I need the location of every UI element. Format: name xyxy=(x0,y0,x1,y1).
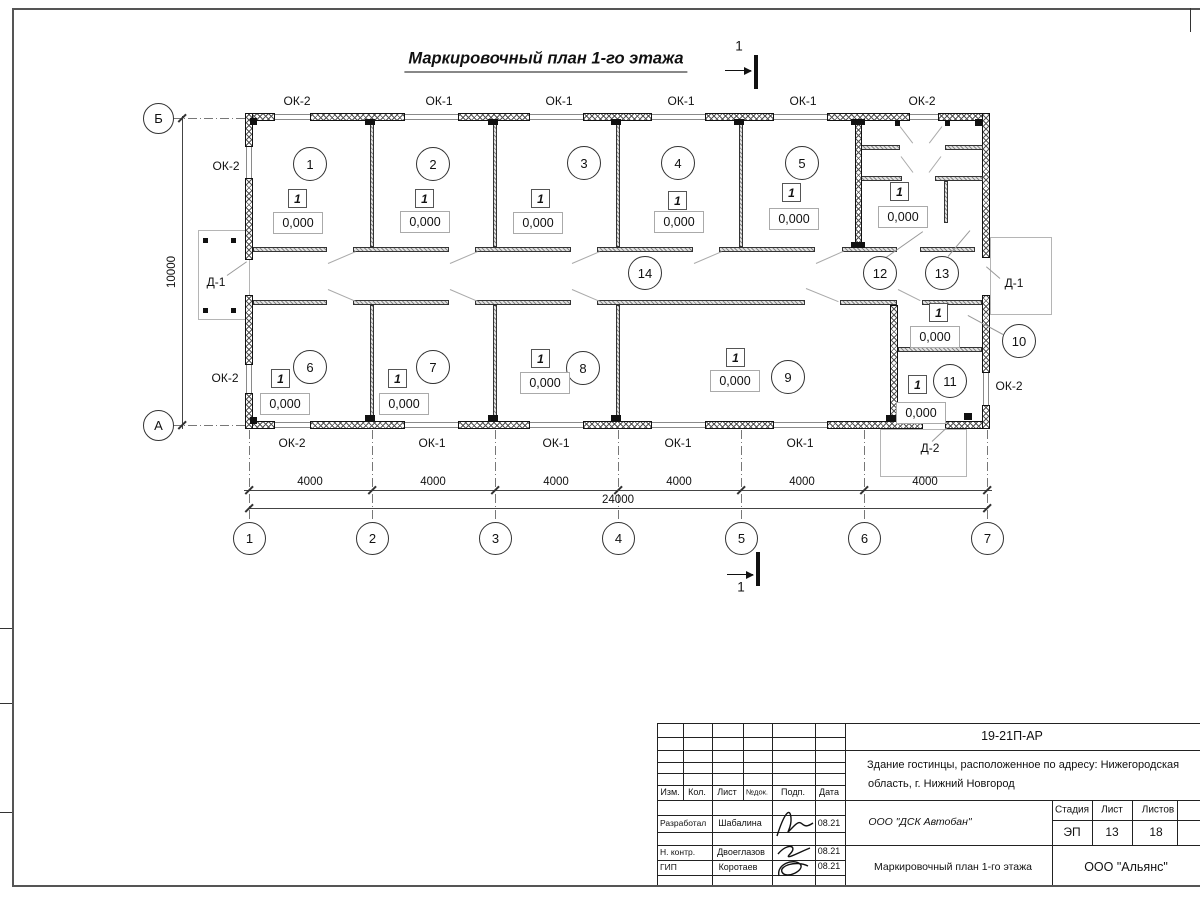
partition-wall xyxy=(858,176,902,181)
room-number-circle: 13 xyxy=(925,256,959,290)
window-label: ОК-1 xyxy=(426,94,453,108)
window-label: ОК-1 xyxy=(668,94,695,108)
titleblock-line xyxy=(657,815,845,816)
wall-end-cap xyxy=(851,119,865,125)
grid-axis-bubble: Б xyxy=(143,103,174,134)
porch-post xyxy=(203,308,208,313)
axis-line-vertical xyxy=(372,430,373,523)
room-number-circle: 7 xyxy=(416,350,450,384)
door-swing-line xyxy=(328,251,356,264)
window-symbol xyxy=(246,147,252,178)
window-symbol xyxy=(275,422,310,428)
titleblock-header-kol: Кол. xyxy=(688,787,706,797)
window-symbol xyxy=(246,365,252,393)
partition-wall xyxy=(253,247,327,252)
titleblock-line xyxy=(657,750,1200,751)
window-label: ОК-2 xyxy=(284,94,311,108)
wall-end-cap xyxy=(250,417,257,424)
door-swing-line xyxy=(572,251,600,264)
titleblock-line xyxy=(845,723,846,885)
sheet-frame-top xyxy=(12,8,1200,10)
door-swing-line xyxy=(901,156,914,173)
grid-axis-bubble: 5 xyxy=(725,522,758,555)
section-mark-bar xyxy=(756,552,760,586)
axis-line-horizontal xyxy=(172,425,254,426)
exterior-wall xyxy=(458,421,530,429)
axis-line-vertical xyxy=(987,430,988,523)
door-swing-line xyxy=(806,288,838,302)
floor-type-mark: 1 xyxy=(668,191,687,210)
wall-end-cap xyxy=(975,119,982,126)
window-symbol xyxy=(530,114,583,120)
sheet-frame-left xyxy=(12,8,14,886)
window-label: ОК-2 xyxy=(996,379,1023,393)
titleblock-sheet-title: Маркировочный план 1-го этажа xyxy=(874,861,1032,873)
partition-wall xyxy=(475,300,571,305)
door-swing-line xyxy=(929,156,942,173)
titleblock-line xyxy=(657,762,845,763)
floor-type-mark: 1 xyxy=(929,303,948,322)
partition-wall xyxy=(493,305,497,421)
window-symbol xyxy=(405,422,458,428)
section-arrow-icon xyxy=(746,571,754,579)
dimension-value: 4000 xyxy=(543,476,569,488)
door-swing-line xyxy=(694,251,722,264)
window-label: ОК-1 xyxy=(546,94,573,108)
trim-mark xyxy=(0,812,12,813)
elevation-mark: 0,000 xyxy=(878,206,928,228)
wall-end-cap xyxy=(611,415,621,421)
dimension-total-value: 24000 xyxy=(602,494,634,506)
door-swing-line xyxy=(450,251,478,264)
door-swing-line xyxy=(450,289,478,302)
titleblock-header-podp: Подп. xyxy=(781,787,805,797)
wall-end-cap xyxy=(851,242,865,248)
window-label: ОК-1 xyxy=(665,436,692,450)
partition-wall xyxy=(719,247,815,252)
titleblock-stage-header: Стадия xyxy=(1055,805,1089,816)
door-swing-line xyxy=(328,289,356,302)
floor-type-mark: 1 xyxy=(726,348,745,367)
porch-post xyxy=(203,238,208,243)
wall-end-cap xyxy=(734,119,744,125)
titleblock-header-data: Дата xyxy=(819,787,839,797)
titleblock-line xyxy=(1177,800,1178,845)
titleblock-line xyxy=(1052,800,1053,885)
elevation-mark: 0,000 xyxy=(260,393,310,415)
partition-wall xyxy=(616,121,620,247)
axis-line-vertical xyxy=(741,430,742,523)
section-mark-label: 1 xyxy=(737,580,745,595)
room-number-circle: 9 xyxy=(771,360,805,394)
door-swing-line xyxy=(898,289,920,301)
window-label: ОК-2 xyxy=(213,159,240,173)
titleblock-line xyxy=(657,737,845,738)
exterior-wall xyxy=(583,421,652,429)
door-swing-line xyxy=(929,126,943,144)
titleblock-sheets-header: Листов xyxy=(1142,805,1175,816)
elevation-mark: 0,000 xyxy=(896,402,946,424)
titleblock-date: 08.21 xyxy=(818,818,841,828)
window-symbol xyxy=(652,422,705,428)
sheet-frame-bottom xyxy=(12,885,1200,887)
wall-end-cap xyxy=(365,415,375,421)
titleblock-line xyxy=(657,832,845,833)
room-number-circle: 10 xyxy=(1002,324,1036,358)
elevation-mark: 0,000 xyxy=(654,211,704,233)
door-swing-line xyxy=(572,289,600,302)
room-number-circle: 4 xyxy=(661,146,695,180)
partition-wall xyxy=(475,247,571,252)
partition-wall xyxy=(597,247,693,252)
signature-1 xyxy=(774,806,816,840)
door-label: Д-2 xyxy=(921,441,940,455)
signature-2 xyxy=(774,840,816,882)
titleblock-line xyxy=(657,723,1200,724)
partition-wall xyxy=(353,247,449,252)
drawing-sheet: Маркировочный план 1-го этажа 1234567891… xyxy=(0,0,1200,900)
wall-end-cap xyxy=(945,120,950,126)
exterior-wall xyxy=(310,421,405,429)
door-label: Д-1 xyxy=(1005,276,1024,290)
partition-wall xyxy=(860,145,900,150)
elevation-mark: 0,000 xyxy=(710,370,760,392)
section-mark-label: 1 xyxy=(735,39,743,54)
titleblock-line xyxy=(1132,800,1133,845)
elevation-mark: 0,000 xyxy=(513,212,563,234)
window-label: ОК-2 xyxy=(279,436,306,450)
exterior-wall xyxy=(982,295,990,373)
titleblock-line xyxy=(657,785,845,786)
titleblock-object-name: Здание гостинцы, расположенное по адресу… xyxy=(867,759,1179,771)
window-label: ОК-1 xyxy=(419,436,446,450)
titleblock-line xyxy=(657,875,845,876)
elevation-mark: 0,000 xyxy=(769,208,819,230)
leader-line xyxy=(948,230,971,257)
room-number-circle: 5 xyxy=(785,146,819,180)
floor-type-mark: 1 xyxy=(908,375,927,394)
window-label: ОК-1 xyxy=(790,94,817,108)
titleblock-stage-value: ЭП xyxy=(1063,825,1080,839)
grid-axis-bubble: 2 xyxy=(356,522,389,555)
wall-end-cap xyxy=(488,119,498,125)
partition-wall xyxy=(920,247,975,252)
dimension-value: 4000 xyxy=(420,476,446,488)
room-number-circle: 2 xyxy=(416,147,450,181)
elevation-mark: 0,000 xyxy=(910,326,960,348)
floor-type-mark: 1 xyxy=(782,183,801,202)
elevation-mark: 0,000 xyxy=(273,212,323,234)
room-number-circle: 11 xyxy=(933,364,967,398)
floor-type-mark: 1 xyxy=(531,189,550,208)
partition-wall xyxy=(370,305,374,421)
window-symbol xyxy=(910,114,938,120)
titleblock-role: ГИП xyxy=(660,862,677,872)
grid-axis-bubble: 7 xyxy=(971,522,1004,555)
axis-line-vertical xyxy=(249,430,250,523)
floor-type-mark: 1 xyxy=(531,349,550,368)
titleblock-header-list: Лист xyxy=(717,787,737,797)
axis-line-vertical xyxy=(618,430,619,523)
partition-wall xyxy=(616,305,620,421)
window-label: ОК-1 xyxy=(543,436,570,450)
dimension-line xyxy=(182,116,183,429)
leader-line xyxy=(886,231,924,258)
window-symbol xyxy=(774,422,827,428)
room-number-circle: 6 xyxy=(293,350,327,384)
axis-line-vertical xyxy=(495,430,496,523)
trim-mark xyxy=(1190,8,1191,32)
wall-end-cap xyxy=(488,415,498,421)
door-swing-line xyxy=(816,251,843,264)
partition-wall xyxy=(944,181,948,223)
partition-wall xyxy=(597,300,805,305)
titleblock-customer-org: ООО "Альянс" xyxy=(1084,860,1168,874)
partition-wall xyxy=(935,176,983,181)
trim-mark xyxy=(0,703,12,704)
room-number-circle: 1 xyxy=(293,147,327,181)
wall-end-cap xyxy=(611,119,621,125)
exterior-wall xyxy=(705,421,774,429)
grid-axis-bubble: 6 xyxy=(848,522,881,555)
elevation-mark: 0,000 xyxy=(379,393,429,415)
titleblock-line xyxy=(1052,820,1200,821)
floor-type-mark: 1 xyxy=(271,369,290,388)
grid-axis-bubble: 4 xyxy=(602,522,635,555)
partition-wall xyxy=(370,121,374,247)
titleblock-line xyxy=(657,845,1200,846)
window-label: ОК-2 xyxy=(212,371,239,385)
dimension-value: 4000 xyxy=(912,476,938,488)
exterior-wall xyxy=(310,113,405,121)
titleblock-sheet-header: Лист xyxy=(1101,805,1123,816)
window-label: ОК-1 xyxy=(787,436,814,450)
axis-line-vertical xyxy=(864,430,865,523)
titleblock-doc-code: 19-21П-АР xyxy=(981,729,1043,743)
partition-wall xyxy=(945,145,983,150)
exterior-wall xyxy=(982,113,990,258)
titleblock-date: 08.21 xyxy=(818,846,841,856)
floor-type-mark: 1 xyxy=(415,189,434,208)
partition-wall xyxy=(840,300,897,305)
door-swing-line xyxy=(900,126,914,144)
grid-axis-bubble: 1 xyxy=(233,522,266,555)
dimension-value: 4000 xyxy=(297,476,323,488)
titleblock-sheets-value: 18 xyxy=(1149,825,1162,839)
wall-end-cap xyxy=(964,413,972,420)
exterior-wall xyxy=(245,295,253,365)
room-number-circle: 8 xyxy=(566,351,600,385)
elevation-mark: 0,000 xyxy=(520,372,570,394)
partition-wall xyxy=(253,300,327,305)
exterior-wall xyxy=(245,178,253,260)
partition-wall xyxy=(739,121,743,247)
dimension-value: 4000 xyxy=(789,476,815,488)
titleblock-header-izm: Изм. xyxy=(660,787,679,797)
titleblock-designer-org: ООО "ДСК Автобан" xyxy=(868,816,971,828)
axis-line-horizontal xyxy=(172,118,254,119)
titleblock-name: Шабалина xyxy=(718,818,761,828)
window-label: ОК-2 xyxy=(909,94,936,108)
titleblock-name: Двоеглазов xyxy=(717,847,765,857)
titleblock-line xyxy=(657,773,845,774)
section-mark-bar xyxy=(754,55,758,89)
titleblock-object-name: область, г. Нижний Новгород xyxy=(868,778,1015,790)
dimension-line xyxy=(249,508,987,509)
grid-axis-bubble: 3 xyxy=(479,522,512,555)
floor-type-mark: 1 xyxy=(288,189,307,208)
section-arrow-icon xyxy=(744,67,752,75)
exterior-wall xyxy=(982,405,990,429)
titleblock-role: Н. контр. xyxy=(660,847,695,857)
grid-axis-bubble: А xyxy=(143,410,174,441)
window-symbol xyxy=(405,114,458,120)
porch-post xyxy=(231,238,236,243)
porch-post xyxy=(231,308,236,313)
elevation-mark: 0,000 xyxy=(400,211,450,233)
partition-wall xyxy=(353,300,449,305)
floor-type-mark: 1 xyxy=(388,369,407,388)
room-number-circle: 14 xyxy=(628,256,662,290)
titleblock-date: 08.21 xyxy=(818,861,841,871)
titleblock-line xyxy=(1092,800,1093,845)
wall-end-cap xyxy=(250,118,257,125)
door-label: Д-1 xyxy=(207,275,226,289)
window-symbol xyxy=(530,422,583,428)
partition-wall xyxy=(493,121,497,247)
titleblock-sheet-value: 13 xyxy=(1105,825,1118,839)
room-number-circle: 3 xyxy=(567,146,601,180)
titleblock-header-ndok: №док. xyxy=(746,788,768,797)
window-symbol xyxy=(774,114,827,120)
window-symbol xyxy=(275,114,310,120)
wall-end-cap xyxy=(365,119,375,125)
dimension-value: 4000 xyxy=(666,476,692,488)
dimension-vertical-value: 10000 xyxy=(166,256,178,288)
room-number-circle: 12 xyxy=(863,256,897,290)
interior-bearing-wall xyxy=(855,121,862,248)
floor-type-mark: 1 xyxy=(890,182,909,201)
trim-mark xyxy=(0,628,12,629)
window-symbol xyxy=(983,373,989,405)
titleblock-role: Разработал xyxy=(660,818,706,828)
titleblock-name: Коротаев xyxy=(719,862,758,872)
wall-end-cap xyxy=(895,120,900,126)
page-title: Маркировочный план 1-го этажа xyxy=(404,50,687,73)
window-symbol xyxy=(652,114,705,120)
titleblock-line xyxy=(657,800,1200,801)
